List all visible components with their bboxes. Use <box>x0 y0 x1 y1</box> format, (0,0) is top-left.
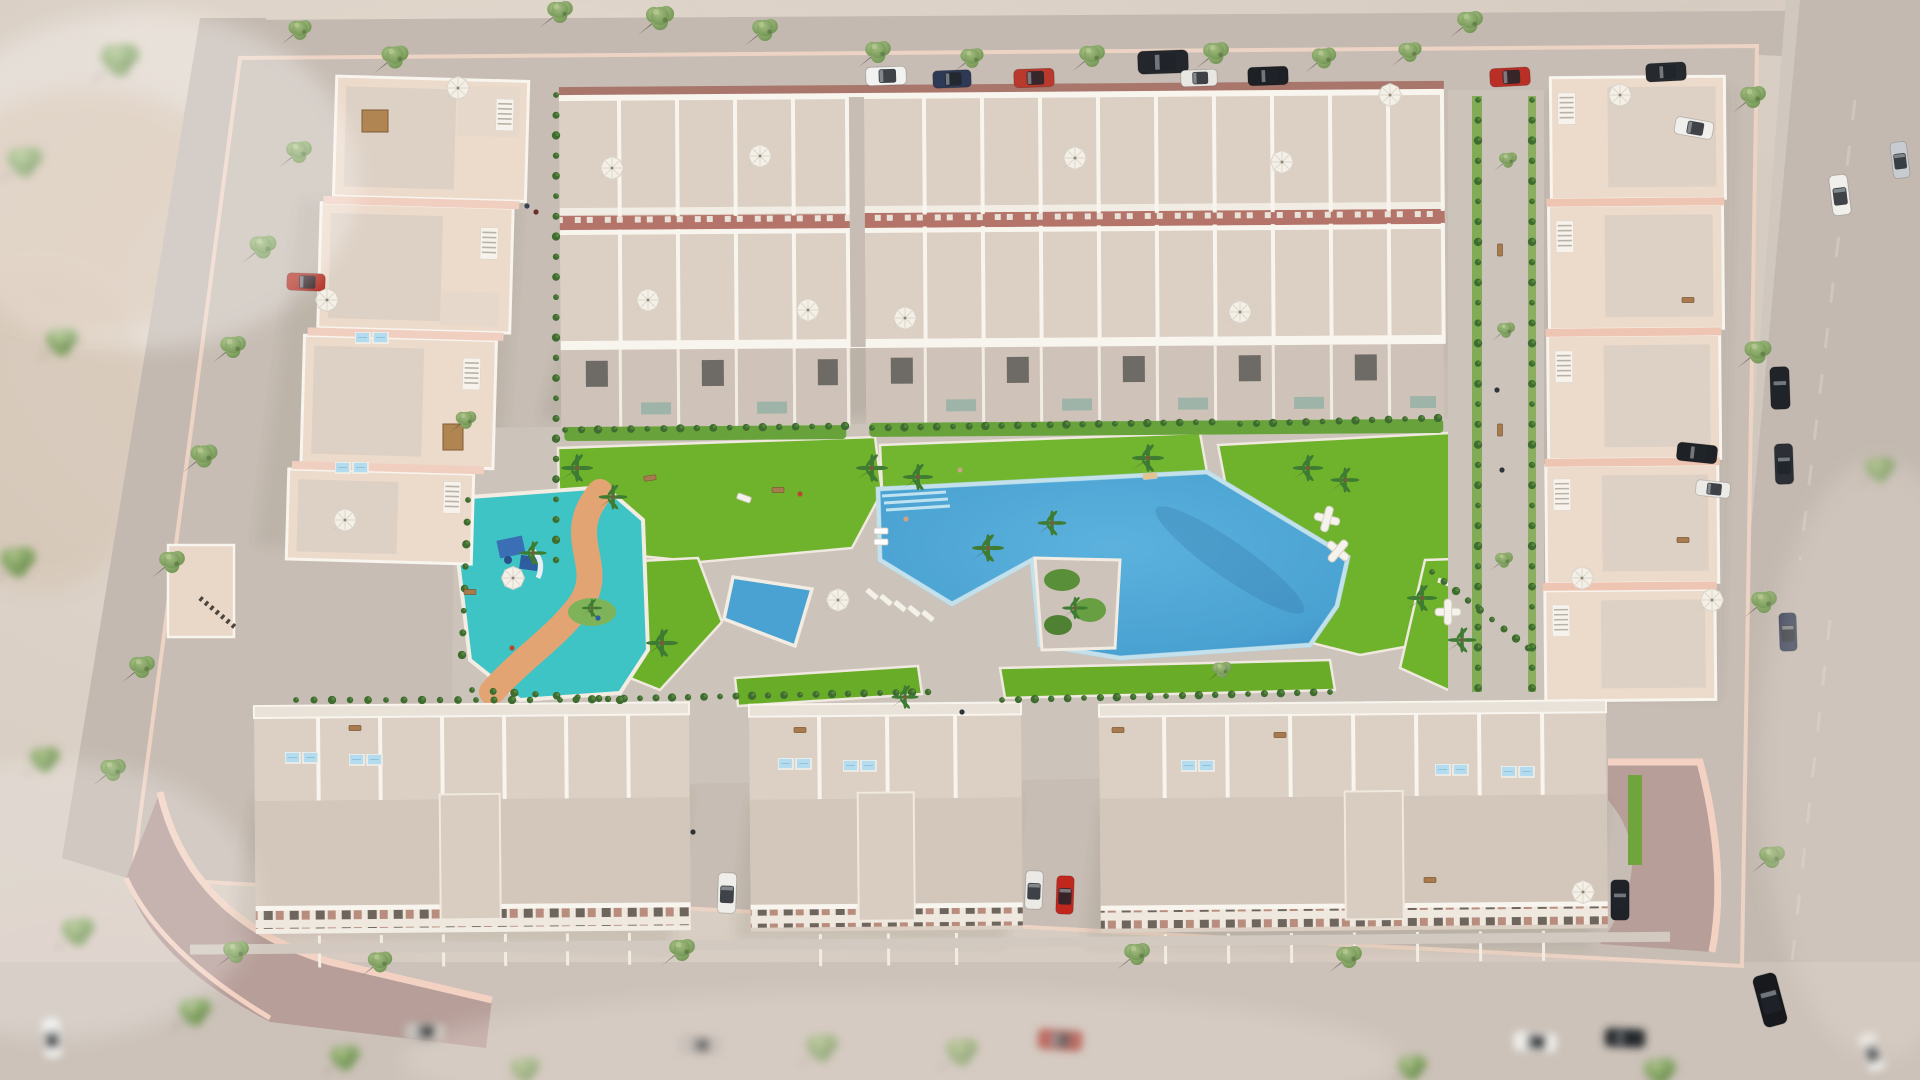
bush <box>490 688 497 695</box>
bush <box>776 424 782 430</box>
person <box>797 491 802 496</box>
bush <box>553 92 559 98</box>
bush <box>400 696 407 703</box>
bush <box>1474 643 1482 651</box>
bench <box>772 488 784 493</box>
bush <box>1475 158 1481 164</box>
bush <box>950 424 956 430</box>
bush <box>1528 624 1535 631</box>
car <box>1611 880 1629 920</box>
bush <box>1529 665 1535 671</box>
bush <box>1512 634 1520 642</box>
bush <box>462 563 468 569</box>
bush <box>1031 422 1037 428</box>
person <box>533 209 538 214</box>
ground-facade <box>561 348 852 428</box>
bush <box>437 697 443 703</box>
bush <box>845 691 851 697</box>
aerial-render-stage <box>0 0 1920 1080</box>
bush <box>1261 690 1268 697</box>
bush <box>1528 117 1535 124</box>
bush <box>1528 320 1535 327</box>
bush <box>1474 218 1481 225</box>
bush <box>1528 522 1535 529</box>
car <box>1489 67 1530 87</box>
bush <box>1081 695 1087 701</box>
bush <box>1529 503 1535 509</box>
bush <box>1474 238 1482 246</box>
bush <box>1163 693 1169 699</box>
bush <box>1160 420 1166 426</box>
bush <box>611 426 617 432</box>
car <box>1676 442 1718 464</box>
bush <box>1474 177 1482 185</box>
bush <box>490 696 497 703</box>
bush <box>1208 418 1215 425</box>
bench <box>1682 298 1694 303</box>
bush <box>1474 684 1482 692</box>
bush <box>1237 421 1243 427</box>
bush <box>1179 692 1186 699</box>
bush <box>700 693 708 701</box>
bush <box>1212 692 1218 698</box>
bush <box>758 423 766 431</box>
car <box>1025 871 1044 910</box>
bush <box>644 426 650 432</box>
bush <box>552 213 559 220</box>
bush <box>1474 136 1482 144</box>
bush <box>605 696 611 702</box>
bush <box>1529 604 1535 610</box>
villa <box>1548 334 1721 459</box>
bush <box>1475 462 1481 468</box>
bush <box>1474 481 1482 489</box>
bush <box>925 689 931 695</box>
person <box>903 516 908 521</box>
bush <box>797 692 803 698</box>
bush <box>812 691 819 698</box>
bush <box>727 425 733 431</box>
bush <box>1525 645 1531 651</box>
bush <box>828 690 836 698</box>
bush <box>732 693 739 700</box>
bush <box>1528 177 1536 185</box>
bush <box>473 697 479 703</box>
bench <box>1498 424 1503 436</box>
row-building <box>749 702 1023 931</box>
person <box>959 709 964 714</box>
bush <box>860 690 868 698</box>
bush <box>1475 198 1481 204</box>
bush <box>553 496 559 502</box>
bush <box>1474 380 1482 388</box>
bush <box>1529 300 1535 306</box>
bush <box>1097 694 1104 701</box>
villa <box>1546 464 1719 583</box>
car <box>1774 444 1794 485</box>
bush <box>552 536 560 544</box>
bush <box>1079 421 1085 427</box>
bush <box>1440 578 1447 585</box>
bush <box>532 691 538 697</box>
bush <box>660 425 667 432</box>
bush <box>1146 693 1154 701</box>
bush <box>1195 691 1203 699</box>
bush <box>553 557 559 563</box>
bush <box>1475 563 1481 569</box>
bush <box>1048 696 1054 702</box>
bush <box>510 689 518 697</box>
bush <box>1528 441 1536 449</box>
bush <box>1014 422 1022 430</box>
person <box>524 203 529 208</box>
bush <box>553 254 559 260</box>
lower-row-terraces <box>560 228 851 350</box>
row-building <box>1099 700 1608 932</box>
bush <box>1475 503 1481 509</box>
car <box>933 70 972 89</box>
bush <box>1529 97 1535 103</box>
bush <box>616 696 624 704</box>
bush <box>1475 259 1481 265</box>
bush <box>454 696 462 704</box>
bench <box>1274 733 1286 738</box>
blurred-car <box>1512 1030 1558 1053</box>
right-villa-column <box>1538 76 1729 701</box>
bush <box>1475 665 1481 671</box>
bush <box>347 697 353 703</box>
bush <box>464 519 471 526</box>
bench <box>794 728 806 733</box>
bush <box>418 696 426 704</box>
bush <box>553 456 559 462</box>
bush <box>1500 625 1507 632</box>
bush <box>1351 416 1359 424</box>
bush <box>1228 691 1236 699</box>
upper-row-terraces <box>559 97 850 217</box>
bush <box>1294 690 1300 696</box>
bush <box>1528 421 1535 428</box>
bush <box>1064 695 1072 703</box>
bush <box>999 697 1005 703</box>
bush <box>465 497 471 503</box>
bush <box>1143 419 1151 427</box>
car <box>1181 69 1218 87</box>
sun-lounger <box>874 528 888 534</box>
bench <box>1112 728 1124 733</box>
bush <box>998 423 1004 429</box>
bush <box>1130 694 1136 700</box>
bench <box>464 590 476 595</box>
bush <box>527 697 533 703</box>
bush <box>748 692 756 700</box>
bush <box>1269 419 1277 427</box>
bush <box>637 695 643 701</box>
bush <box>552 415 559 422</box>
bush <box>668 693 676 701</box>
bush <box>1475 97 1481 103</box>
bush <box>1320 419 1326 425</box>
bush <box>877 690 883 696</box>
bush <box>1528 380 1536 388</box>
bush <box>1529 563 1535 569</box>
bush <box>1528 136 1536 144</box>
person <box>690 829 695 834</box>
bush <box>869 425 875 431</box>
bush <box>1418 415 1425 422</box>
car <box>1695 479 1731 498</box>
bush <box>933 423 941 431</box>
bush <box>1529 360 1535 366</box>
bush <box>553 152 559 158</box>
bush <box>1095 420 1103 428</box>
villa <box>333 76 528 201</box>
bush <box>1474 522 1481 529</box>
sun-lounger <box>874 539 888 545</box>
bush <box>1474 421 1481 428</box>
bush <box>461 608 467 614</box>
bush <box>1529 401 1535 407</box>
person <box>1494 387 1499 392</box>
bush <box>553 395 559 401</box>
villa <box>1545 589 1716 700</box>
bush <box>1474 279 1482 287</box>
bush <box>1474 117 1481 124</box>
bush <box>917 424 923 430</box>
bush <box>1528 279 1536 287</box>
bush <box>553 355 559 361</box>
car <box>866 66 907 86</box>
bush <box>1031 695 1039 703</box>
bush <box>1529 259 1535 265</box>
bush <box>1302 418 1310 426</box>
bush <box>1475 401 1481 407</box>
bush <box>900 423 908 431</box>
bush <box>1429 569 1435 575</box>
bush <box>1474 441 1482 449</box>
bush <box>1475 300 1481 306</box>
bush <box>552 435 560 443</box>
wood-pergola <box>443 424 463 450</box>
bush <box>1474 339 1482 347</box>
bush <box>462 540 470 548</box>
bush <box>1465 597 1471 603</box>
bush <box>1402 416 1408 422</box>
bush <box>459 629 466 636</box>
bush <box>743 424 750 431</box>
villa <box>1548 204 1723 330</box>
bush <box>552 374 560 382</box>
bush <box>552 475 560 483</box>
bush <box>1062 420 1070 428</box>
aerial-scene <box>0 0 1920 1080</box>
villa <box>301 335 496 468</box>
bush <box>552 232 560 240</box>
bush <box>694 425 700 431</box>
bush <box>328 696 336 704</box>
bush <box>765 692 771 698</box>
bush <box>1528 339 1536 347</box>
bush <box>310 696 317 703</box>
bush <box>458 651 466 659</box>
bush <box>1310 689 1318 697</box>
bench <box>1498 244 1503 256</box>
bush <box>1245 691 1251 697</box>
bush <box>1335 417 1342 424</box>
bush <box>1286 419 1292 425</box>
bush <box>383 697 389 703</box>
bush <box>1113 693 1121 701</box>
person <box>595 615 600 620</box>
bench <box>1424 878 1436 883</box>
bush <box>841 422 849 430</box>
person <box>509 645 514 650</box>
bush <box>293 697 299 703</box>
bush <box>627 425 635 433</box>
bush <box>1327 689 1333 695</box>
car <box>1056 876 1075 915</box>
bush <box>1128 420 1135 427</box>
blurred-car <box>1605 1028 1646 1048</box>
bush <box>981 422 989 430</box>
bush <box>578 426 585 433</box>
bush <box>1112 421 1118 427</box>
bush <box>825 423 832 430</box>
bush <box>1528 583 1536 591</box>
bush <box>1529 158 1535 164</box>
bush <box>1253 420 1260 427</box>
bush <box>595 695 602 702</box>
bush <box>780 691 788 699</box>
car <box>1014 68 1055 88</box>
car <box>1137 50 1188 75</box>
bush <box>469 687 475 693</box>
bush <box>1015 696 1022 703</box>
bush <box>1474 542 1482 550</box>
bush <box>685 694 691 700</box>
bush <box>553 193 559 199</box>
bush <box>508 696 516 704</box>
bush <box>575 694 581 700</box>
bush <box>717 694 723 700</box>
bush <box>552 333 560 341</box>
person <box>1499 467 1504 472</box>
car <box>1248 66 1289 86</box>
bush <box>552 131 560 139</box>
bush <box>552 516 559 523</box>
bush <box>553 294 559 300</box>
bush <box>1277 689 1285 697</box>
sun-lounger <box>1143 472 1157 479</box>
bush <box>966 423 973 430</box>
bush <box>1528 684 1536 692</box>
bush <box>588 695 596 703</box>
bush <box>1489 617 1495 623</box>
bush <box>1176 419 1184 427</box>
bush <box>1047 421 1054 428</box>
bush <box>364 696 372 704</box>
person <box>957 467 962 472</box>
bush <box>809 424 815 430</box>
bush <box>552 172 560 180</box>
bush <box>1474 583 1482 591</box>
bush <box>1529 462 1535 468</box>
bush <box>1385 416 1393 424</box>
bush <box>792 423 800 431</box>
bush <box>1476 606 1484 614</box>
car <box>717 873 737 914</box>
row-building <box>254 702 691 934</box>
bush <box>885 424 892 431</box>
bush <box>1475 360 1481 366</box>
bush <box>1529 198 1535 204</box>
block-alley <box>849 97 866 347</box>
bush <box>1193 419 1199 425</box>
bush <box>1528 481 1536 489</box>
villa <box>286 469 473 564</box>
bush <box>1452 587 1460 595</box>
bush <box>892 689 899 696</box>
bush <box>552 112 559 119</box>
bush <box>676 424 684 432</box>
bush <box>562 427 568 433</box>
bush <box>552 273 560 281</box>
bush <box>1434 414 1442 422</box>
bench <box>349 726 361 731</box>
bush <box>1474 320 1481 327</box>
bench <box>1677 538 1689 543</box>
car <box>1645 62 1686 82</box>
bush <box>594 425 602 433</box>
car <box>1770 367 1791 410</box>
bush <box>652 694 659 701</box>
bush <box>552 314 559 321</box>
bush <box>1474 624 1481 631</box>
bush <box>709 424 717 432</box>
bush <box>1369 417 1375 423</box>
wood-pergola <box>362 110 388 132</box>
bush <box>1528 218 1535 225</box>
bush <box>553 692 561 700</box>
bush <box>1528 238 1536 246</box>
bush <box>1528 542 1536 550</box>
